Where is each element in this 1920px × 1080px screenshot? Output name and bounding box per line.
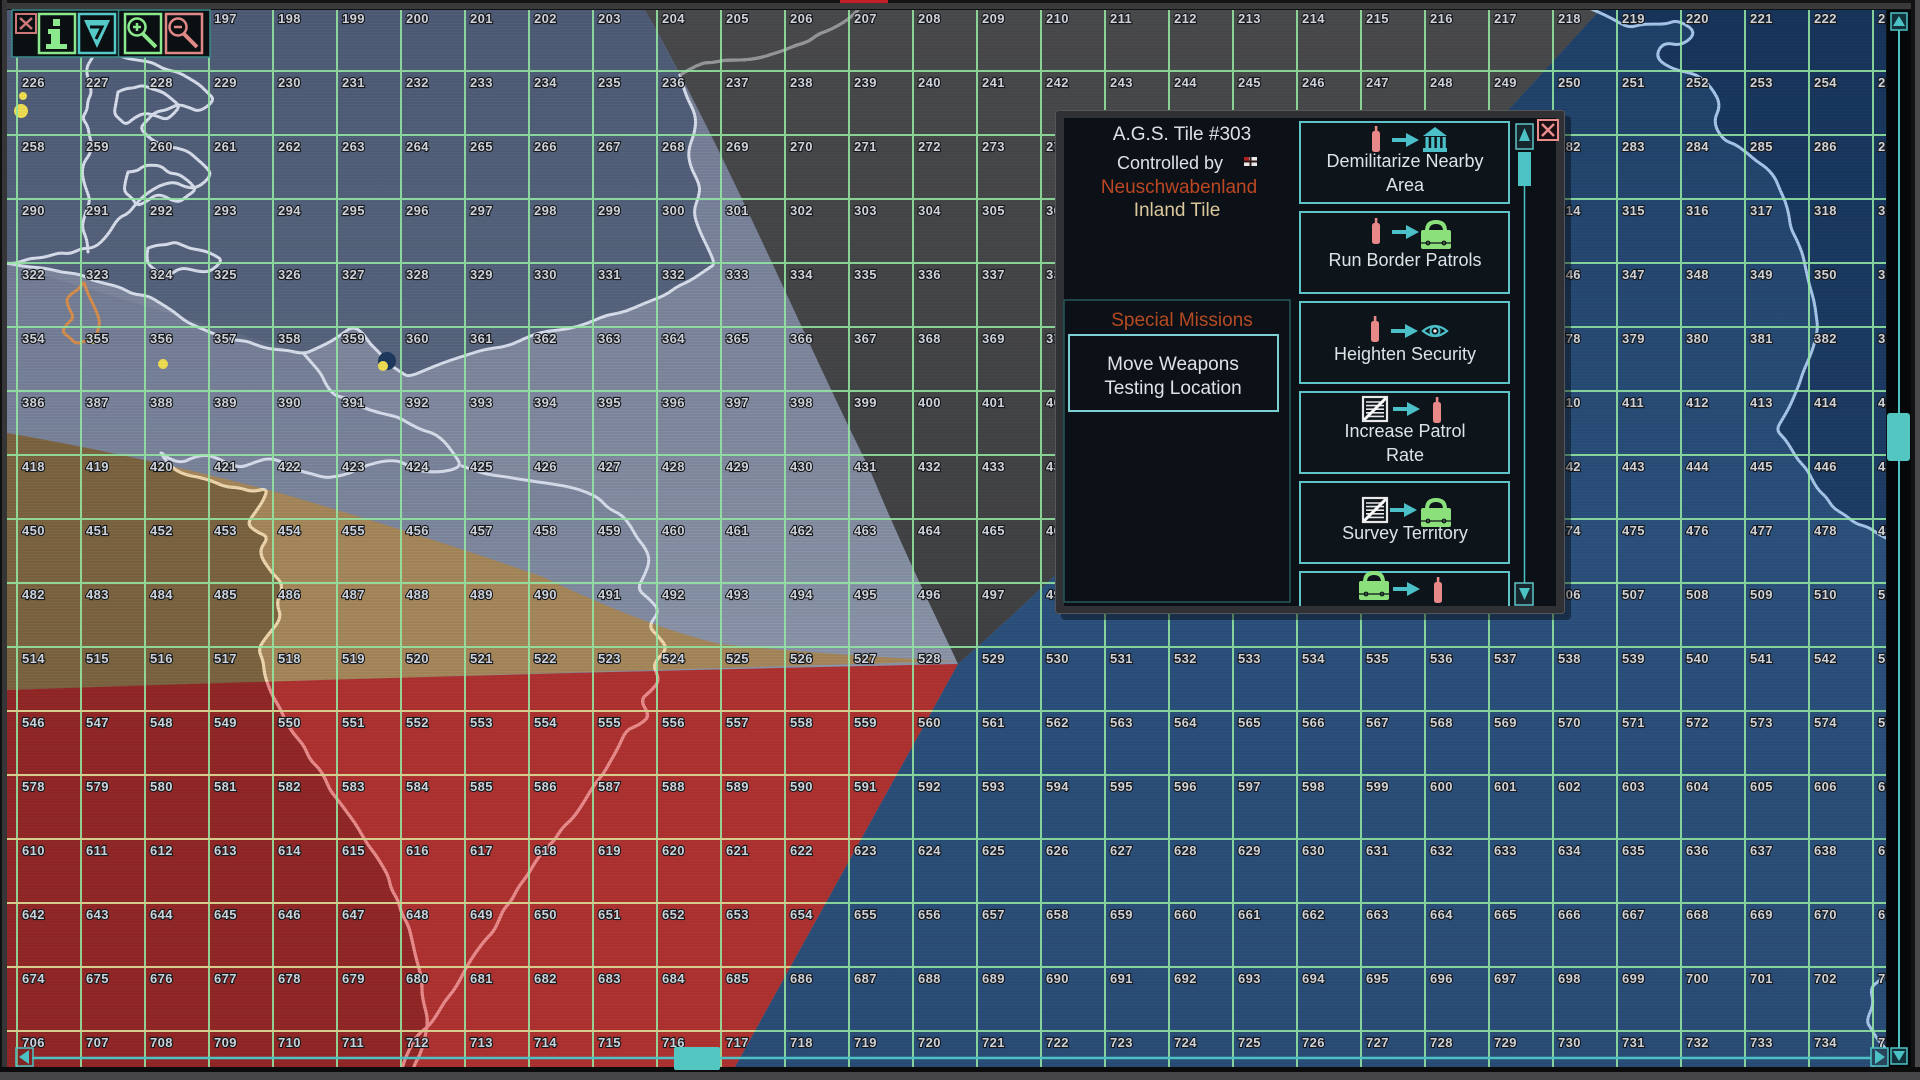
- svg-text:228: 228: [150, 75, 173, 90]
- svg-text:719: 719: [854, 1035, 877, 1050]
- svg-text:Rate: Rate: [1386, 445, 1424, 465]
- svg-text:426: 426: [534, 459, 557, 474]
- svg-text:637: 637: [1750, 843, 1773, 858]
- svg-text:520: 520: [406, 651, 429, 666]
- svg-text:596: 596: [1174, 779, 1197, 794]
- svg-text:663: 663: [1366, 907, 1389, 922]
- svg-text:540: 540: [1686, 651, 1709, 666]
- svg-text:531: 531: [1110, 651, 1133, 666]
- svg-text:283: 283: [1622, 139, 1645, 154]
- svg-text:601: 601: [1494, 779, 1517, 794]
- svg-text:674: 674: [22, 971, 45, 986]
- svg-text:295: 295: [342, 203, 365, 218]
- svg-text:259: 259: [86, 139, 109, 154]
- svg-text:510: 510: [1814, 587, 1837, 602]
- svg-text:220: 220: [1686, 11, 1709, 26]
- svg-text:247: 247: [1366, 75, 1389, 90]
- svg-text:484: 484: [150, 587, 173, 602]
- svg-text:676: 676: [150, 971, 173, 986]
- svg-text:665: 665: [1494, 907, 1517, 922]
- svg-text:Neuschwabenland: Neuschwabenland: [1101, 177, 1257, 198]
- svg-text:413: 413: [1750, 395, 1773, 410]
- svg-text:688: 688: [918, 971, 941, 986]
- svg-text:728: 728: [1430, 1035, 1453, 1050]
- svg-text:683: 683: [598, 971, 621, 986]
- svg-text:589: 589: [726, 779, 749, 794]
- svg-text:267: 267: [598, 139, 621, 154]
- svg-text:213: 213: [1238, 11, 1261, 26]
- svg-text:239: 239: [854, 75, 877, 90]
- svg-text:285: 285: [1750, 139, 1773, 154]
- svg-text:325: 325: [214, 267, 237, 282]
- svg-text:734: 734: [1814, 1035, 1837, 1050]
- svg-text:443: 443: [1622, 459, 1645, 474]
- svg-text:452: 452: [150, 523, 173, 538]
- svg-text:234: 234: [534, 75, 557, 90]
- svg-text:591: 591: [854, 779, 877, 794]
- svg-text:647: 647: [342, 907, 365, 922]
- svg-text:731: 731: [1622, 1035, 1645, 1050]
- svg-text:569: 569: [1494, 715, 1517, 730]
- svg-text:508: 508: [1686, 587, 1709, 602]
- svg-text:357: 357: [214, 331, 237, 346]
- svg-text:643: 643: [86, 907, 109, 922]
- svg-text:263: 263: [342, 139, 365, 154]
- svg-text:430: 430: [790, 459, 813, 474]
- svg-text:526: 526: [790, 651, 813, 666]
- svg-text:411: 411: [1622, 395, 1644, 410]
- svg-text:490: 490: [534, 587, 557, 602]
- svg-text:606: 606: [1814, 779, 1837, 794]
- svg-text:618: 618: [534, 843, 557, 858]
- svg-text:651: 651: [598, 907, 621, 922]
- svg-text:427: 427: [598, 459, 621, 474]
- svg-text:381: 381: [1750, 331, 1773, 346]
- svg-text:494: 494: [790, 587, 813, 602]
- svg-text:650: 650: [534, 907, 557, 922]
- svg-text:294: 294: [278, 203, 301, 218]
- svg-text:419: 419: [86, 459, 109, 474]
- svg-text:654: 654: [790, 907, 813, 922]
- svg-text:713: 713: [470, 1035, 493, 1050]
- svg-text:568: 568: [1430, 715, 1453, 730]
- svg-text:264: 264: [406, 139, 429, 154]
- svg-text:495: 495: [854, 587, 877, 602]
- svg-text:605: 605: [1750, 779, 1773, 794]
- svg-text:359: 359: [342, 331, 365, 346]
- svg-text:A.G.S. Tile #303: A.G.S. Tile #303: [1113, 124, 1251, 145]
- svg-text:534: 534: [1302, 651, 1325, 666]
- svg-text:422: 422: [278, 459, 301, 474]
- svg-text:323: 323: [86, 267, 109, 282]
- svg-text:317: 317: [1750, 203, 1773, 218]
- svg-text:554: 554: [534, 715, 557, 730]
- svg-text:689: 689: [982, 971, 1005, 986]
- svg-text:694: 694: [1302, 971, 1325, 986]
- svg-text:729: 729: [1494, 1035, 1517, 1050]
- svg-text:412: 412: [1686, 395, 1709, 410]
- svg-text:655: 655: [854, 907, 877, 922]
- svg-text:366: 366: [790, 331, 813, 346]
- svg-text:458: 458: [534, 523, 557, 538]
- svg-text:587: 587: [598, 779, 621, 794]
- svg-text:516: 516: [150, 651, 173, 666]
- svg-text:210: 210: [1046, 11, 1069, 26]
- svg-text:Inland Tile: Inland Tile: [1134, 200, 1221, 221]
- svg-text:396: 396: [662, 395, 685, 410]
- svg-text:202: 202: [534, 11, 557, 26]
- svg-text:590: 590: [790, 779, 813, 794]
- svg-text:699: 699: [1622, 971, 1645, 986]
- svg-text:732: 732: [1686, 1035, 1709, 1050]
- svg-text:636: 636: [1686, 843, 1709, 858]
- svg-text:258: 258: [22, 139, 45, 154]
- svg-text:433: 433: [982, 459, 1005, 474]
- svg-text:661: 661: [1238, 907, 1261, 922]
- svg-text:482: 482: [22, 587, 45, 602]
- svg-text:296: 296: [406, 203, 429, 218]
- svg-text:724: 724: [1174, 1035, 1197, 1050]
- svg-text:514: 514: [22, 651, 45, 666]
- svg-text:656: 656: [918, 907, 941, 922]
- svg-text:478: 478: [1814, 523, 1837, 538]
- svg-text:670: 670: [1814, 907, 1837, 922]
- svg-text:695: 695: [1366, 971, 1389, 986]
- svg-text:664: 664: [1430, 907, 1453, 922]
- svg-text:221: 221: [1750, 11, 1773, 26]
- svg-text:693: 693: [1238, 971, 1261, 986]
- svg-text:326: 326: [278, 267, 301, 282]
- svg-text:611: 611: [86, 843, 108, 858]
- svg-text:614: 614: [278, 843, 301, 858]
- svg-text:248: 248: [1430, 75, 1453, 90]
- svg-text:240: 240: [918, 75, 941, 90]
- svg-text:638: 638: [1814, 843, 1837, 858]
- svg-text:324: 324: [150, 267, 173, 282]
- svg-text:464: 464: [918, 523, 941, 538]
- svg-text:230: 230: [278, 75, 301, 90]
- svg-text:493: 493: [726, 587, 749, 602]
- svg-text:593: 593: [982, 779, 1005, 794]
- svg-text:612: 612: [150, 843, 173, 858]
- svg-text:630: 630: [1302, 843, 1325, 858]
- svg-text:272: 272: [918, 139, 941, 154]
- svg-text:597: 597: [1238, 779, 1261, 794]
- svg-text:232: 232: [406, 75, 429, 90]
- svg-text:653: 653: [726, 907, 749, 922]
- svg-text:556: 556: [662, 715, 685, 730]
- svg-text:529: 529: [982, 651, 1005, 666]
- svg-text:254: 254: [1814, 75, 1837, 90]
- svg-text:207: 207: [854, 11, 877, 26]
- svg-text:600: 600: [1430, 779, 1453, 794]
- svg-text:620: 620: [662, 843, 685, 858]
- svg-text:Demilitarize Nearby: Demilitarize Nearby: [1326, 151, 1483, 171]
- svg-text:382: 382: [1814, 331, 1837, 346]
- svg-text:333: 333: [726, 267, 749, 282]
- svg-text:627: 627: [1110, 843, 1133, 858]
- svg-text:354: 354: [22, 331, 45, 346]
- svg-text:562: 562: [1046, 715, 1069, 730]
- svg-text:237: 237: [726, 75, 749, 90]
- svg-text:421: 421: [214, 459, 237, 474]
- svg-text:598: 598: [1302, 779, 1325, 794]
- svg-text:533: 533: [1238, 651, 1261, 666]
- svg-text:559: 559: [854, 715, 877, 730]
- svg-text:678: 678: [278, 971, 301, 986]
- svg-text:271: 271: [854, 139, 877, 154]
- svg-text:714: 714: [534, 1035, 557, 1050]
- svg-text:652: 652: [662, 907, 685, 922]
- svg-text:369: 369: [982, 331, 1005, 346]
- svg-text:432: 432: [918, 459, 941, 474]
- svg-text:203: 203: [598, 11, 621, 26]
- svg-text:648: 648: [406, 907, 429, 922]
- svg-text:268: 268: [662, 139, 685, 154]
- svg-text:235: 235: [598, 75, 621, 90]
- svg-text:206: 206: [790, 11, 813, 26]
- svg-text:238: 238: [790, 75, 813, 90]
- svg-text:507: 507: [1622, 587, 1645, 602]
- svg-text:394: 394: [534, 395, 557, 410]
- svg-text:476: 476: [1686, 523, 1709, 538]
- svg-text:483: 483: [86, 587, 109, 602]
- svg-text:424: 424: [406, 459, 429, 474]
- svg-text:519: 519: [342, 651, 365, 666]
- svg-text:541: 541: [1750, 651, 1773, 666]
- svg-text:567: 567: [1366, 715, 1389, 730]
- svg-text:388: 388: [150, 395, 173, 410]
- svg-text:486: 486: [278, 587, 301, 602]
- svg-text:549: 549: [214, 715, 237, 730]
- svg-text:305: 305: [982, 203, 1005, 218]
- svg-text:475: 475: [1622, 523, 1645, 538]
- svg-text:715: 715: [598, 1035, 621, 1050]
- svg-text:390: 390: [278, 395, 301, 410]
- svg-text:635: 635: [1622, 843, 1645, 858]
- svg-text:496: 496: [918, 587, 941, 602]
- svg-text:Move Weapons: Move Weapons: [1107, 354, 1239, 375]
- svg-text:594: 594: [1046, 779, 1069, 794]
- svg-text:303: 303: [854, 203, 877, 218]
- svg-text:199: 199: [342, 11, 365, 26]
- svg-text:622: 622: [790, 843, 813, 858]
- svg-text:571: 571: [1622, 715, 1645, 730]
- svg-text:583: 583: [342, 779, 365, 794]
- svg-text:217: 217: [1494, 11, 1517, 26]
- svg-text:537: 537: [1494, 651, 1517, 666]
- svg-text:465: 465: [982, 523, 1005, 538]
- svg-text:532: 532: [1174, 651, 1197, 666]
- svg-text:322: 322: [22, 267, 45, 282]
- svg-text:302: 302: [790, 203, 813, 218]
- svg-text:364: 364: [662, 331, 685, 346]
- svg-text:733: 733: [1750, 1035, 1773, 1050]
- svg-text:457: 457: [470, 523, 493, 538]
- svg-text:328: 328: [406, 267, 429, 282]
- svg-text:617: 617: [470, 843, 493, 858]
- svg-text:365: 365: [726, 331, 749, 346]
- svg-text:624: 624: [918, 843, 941, 858]
- svg-text:231: 231: [342, 75, 365, 90]
- svg-text:523: 523: [598, 651, 621, 666]
- svg-text:552: 552: [406, 715, 429, 730]
- svg-text:216: 216: [1430, 11, 1453, 26]
- svg-text:Run Border Patrols: Run Border Patrols: [1328, 250, 1481, 270]
- svg-text:615: 615: [342, 843, 365, 858]
- svg-text:420: 420: [150, 459, 173, 474]
- svg-text:242: 242: [1046, 75, 1069, 90]
- svg-text:684: 684: [662, 971, 685, 986]
- svg-text:633: 633: [1494, 843, 1517, 858]
- svg-text:226: 226: [22, 75, 45, 90]
- svg-text:418: 418: [22, 459, 45, 474]
- svg-text:712: 712: [406, 1035, 429, 1050]
- svg-text:573: 573: [1750, 715, 1773, 730]
- svg-text:389: 389: [214, 395, 237, 410]
- svg-text:367: 367: [854, 331, 877, 346]
- svg-text:631: 631: [1366, 843, 1389, 858]
- svg-text:488: 488: [406, 587, 429, 602]
- svg-text:400: 400: [918, 395, 941, 410]
- svg-text:392: 392: [406, 395, 429, 410]
- svg-text:360: 360: [406, 331, 429, 346]
- svg-text:393: 393: [470, 395, 493, 410]
- svg-text:425: 425: [470, 459, 493, 474]
- svg-text:542: 542: [1814, 651, 1837, 666]
- svg-text:566: 566: [1302, 715, 1325, 730]
- svg-text:530: 530: [1046, 651, 1069, 666]
- svg-text:252: 252: [1686, 75, 1709, 90]
- svg-text:398: 398: [790, 395, 813, 410]
- svg-text:455: 455: [342, 523, 365, 538]
- svg-text:691: 691: [1110, 971, 1133, 986]
- svg-text:444: 444: [1686, 459, 1709, 474]
- svg-text:685: 685: [726, 971, 749, 986]
- svg-text:579: 579: [86, 779, 109, 794]
- svg-text:561: 561: [982, 715, 1005, 730]
- svg-text:558: 558: [790, 715, 813, 730]
- svg-text:446: 446: [1814, 459, 1837, 474]
- svg-text:243: 243: [1110, 75, 1133, 90]
- svg-text:219: 219: [1622, 11, 1645, 26]
- svg-text:491: 491: [598, 587, 621, 602]
- svg-text:680: 680: [406, 971, 429, 986]
- svg-text:515: 515: [86, 651, 109, 666]
- svg-text:585: 585: [470, 779, 493, 794]
- svg-text:399: 399: [854, 395, 877, 410]
- svg-text:662: 662: [1302, 907, 1325, 922]
- svg-text:198: 198: [278, 11, 301, 26]
- svg-text:679: 679: [342, 971, 365, 986]
- svg-text:423: 423: [342, 459, 365, 474]
- svg-text:Controlled by: Controlled by: [1117, 153, 1223, 173]
- svg-text:687: 687: [854, 971, 877, 986]
- svg-text:509: 509: [1750, 587, 1773, 602]
- svg-text:222: 222: [1814, 11, 1837, 26]
- svg-text:391: 391: [342, 395, 365, 410]
- svg-text:602: 602: [1558, 779, 1581, 794]
- svg-text:241: 241: [982, 75, 1005, 90]
- svg-text:553: 553: [470, 715, 493, 730]
- svg-text:487: 487: [342, 587, 365, 602]
- svg-text:269: 269: [726, 139, 749, 154]
- svg-text:581: 581: [214, 779, 237, 794]
- svg-text:551: 551: [342, 715, 365, 730]
- svg-text:461: 461: [726, 523, 749, 538]
- svg-text:454: 454: [278, 523, 301, 538]
- svg-text:658: 658: [1046, 907, 1069, 922]
- svg-text:723: 723: [1110, 1035, 1133, 1050]
- svg-text:462: 462: [790, 523, 813, 538]
- svg-text:233: 233: [470, 75, 493, 90]
- svg-text:358: 358: [278, 331, 301, 346]
- svg-text:720: 720: [918, 1035, 941, 1050]
- svg-text:348: 348: [1686, 267, 1709, 282]
- svg-text:595: 595: [1110, 779, 1133, 794]
- svg-text:355: 355: [86, 331, 109, 346]
- svg-text:521: 521: [470, 651, 493, 666]
- svg-text:331: 331: [598, 267, 621, 282]
- svg-text:460: 460: [662, 523, 685, 538]
- svg-text:386: 386: [22, 395, 45, 410]
- svg-text:361: 361: [470, 331, 493, 346]
- svg-text:726: 726: [1302, 1035, 1325, 1050]
- svg-text:659: 659: [1110, 907, 1133, 922]
- svg-text:564: 564: [1174, 715, 1197, 730]
- svg-text:477: 477: [1750, 523, 1773, 538]
- svg-text:265: 265: [470, 139, 493, 154]
- svg-text:Special Missions: Special Missions: [1111, 310, 1253, 331]
- svg-text:215: 215: [1366, 11, 1389, 26]
- svg-text:395: 395: [598, 395, 621, 410]
- svg-text:250: 250: [1558, 75, 1581, 90]
- svg-text:335: 335: [854, 267, 877, 282]
- svg-text:209: 209: [982, 11, 1005, 26]
- svg-text:229: 229: [214, 75, 237, 90]
- svg-text:204: 204: [662, 11, 685, 26]
- svg-text:646: 646: [278, 907, 301, 922]
- svg-text:211: 211: [1110, 11, 1132, 26]
- svg-text:315: 315: [1622, 203, 1645, 218]
- svg-text:718: 718: [790, 1035, 813, 1050]
- svg-text:387: 387: [86, 395, 109, 410]
- svg-text:628: 628: [1174, 843, 1197, 858]
- svg-text:518: 518: [278, 651, 301, 666]
- svg-text:347: 347: [1622, 267, 1645, 282]
- svg-text:414: 414: [1814, 395, 1837, 410]
- svg-text:588: 588: [662, 779, 685, 794]
- svg-text:463: 463: [854, 523, 877, 538]
- svg-text:632: 632: [1430, 843, 1453, 858]
- svg-text:236: 236: [662, 75, 685, 90]
- svg-text:692: 692: [1174, 971, 1197, 986]
- svg-text:445: 445: [1750, 459, 1773, 474]
- svg-text:517: 517: [214, 651, 237, 666]
- svg-text:550: 550: [278, 715, 301, 730]
- svg-text:717: 717: [726, 1035, 749, 1050]
- svg-text:456: 456: [406, 523, 429, 538]
- svg-text:316: 316: [1686, 203, 1709, 218]
- svg-text:584: 584: [406, 779, 429, 794]
- svg-text:621: 621: [726, 843, 749, 858]
- svg-text:291: 291: [86, 203, 109, 218]
- svg-text:721: 721: [982, 1035, 1005, 1050]
- svg-text:379: 379: [1622, 331, 1645, 346]
- svg-text:266: 266: [534, 139, 557, 154]
- svg-text:696: 696: [1430, 971, 1453, 986]
- svg-text:197: 197: [214, 11, 237, 26]
